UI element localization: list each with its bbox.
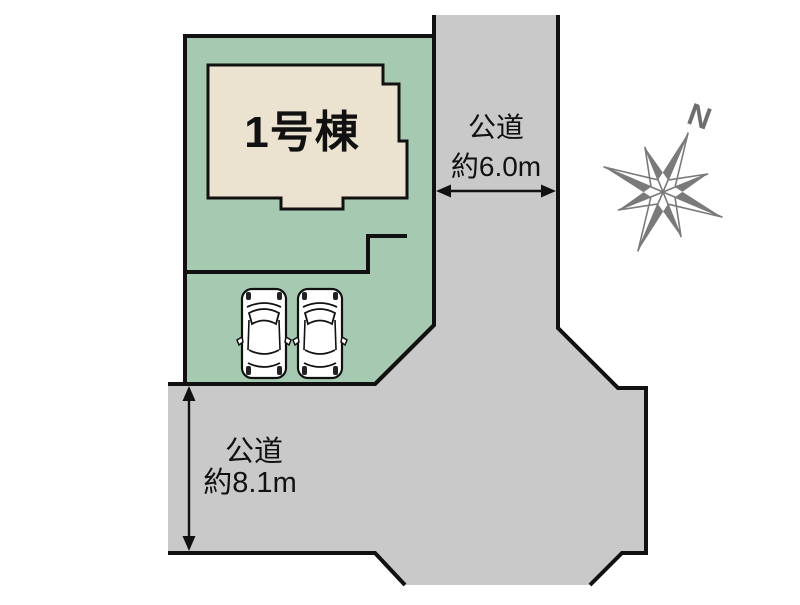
- south-road-width: 約8.1m: [203, 466, 296, 499]
- car-icon-2: [293, 289, 347, 378]
- compass-north-label: N: [683, 96, 716, 137]
- car-icon-1: [237, 289, 291, 378]
- site-plan-svg: 1号棟 公道 約6.0m 公道 約: [0, 0, 800, 600]
- east-road-name: 公道: [468, 112, 524, 143]
- site-plan-diagram: 1号棟 公道 約6.0m 公道 約: [0, 0, 800, 600]
- road-border-south: [168, 553, 405, 585]
- south-road-name: 公道: [225, 435, 283, 468]
- building-label: 1号棟: [244, 108, 359, 157]
- compass-rose-icon: [579, 108, 747, 276]
- east-road-width: 約6.0m: [451, 151, 541, 182]
